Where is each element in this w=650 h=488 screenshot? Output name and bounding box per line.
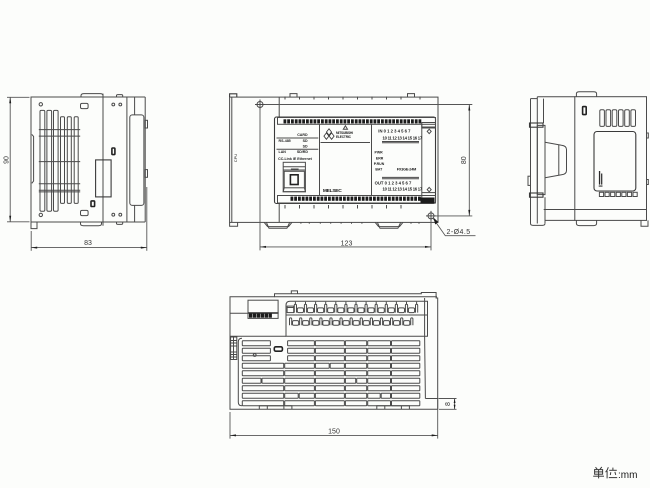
svg-text:10 11 12 13 14 15 16 17: 10 11 12 13 14 15 16 17 xyxy=(383,186,423,191)
svg-text:P.RUN: P.RUN xyxy=(374,162,385,166)
svg-text:83: 83 xyxy=(84,240,92,247)
svg-text::mm: :mm xyxy=(618,470,637,481)
svg-text:PWR: PWR xyxy=(375,150,384,154)
svg-text:RS-485: RS-485 xyxy=(279,139,291,143)
svg-text:90: 90 xyxy=(4,156,11,164)
svg-text:ERR: ERR xyxy=(376,156,384,160)
svg-text:150: 150 xyxy=(328,429,340,436)
svg-text:SD: SD xyxy=(303,139,308,143)
svg-text:SD/RD: SD/RD xyxy=(297,150,309,154)
svg-text:SD: SD xyxy=(303,145,308,149)
svg-text:CPU: CPU xyxy=(233,154,238,163)
svg-text:BAT: BAT xyxy=(375,167,383,171)
svg-text:LAN: LAN xyxy=(279,150,287,154)
svg-text:OUT 0 1 2 3 4 5 6 7: OUT 0 1 2 3 4 5 6 7 xyxy=(375,180,412,185)
svg-text:10 11 12 13 14 15 16 17: 10 11 12 13 14 15 16 17 xyxy=(383,135,423,140)
svg-text:2-Ø4.5: 2-Ø4.5 xyxy=(447,229,471,236)
svg-text:123: 123 xyxy=(341,240,353,247)
svg-text:CC-Link IE Ethernet: CC-Link IE Ethernet xyxy=(278,157,313,161)
svg-text:CARD: CARD xyxy=(297,133,308,137)
svg-text:ELECTRIC: ELECTRIC xyxy=(336,135,352,139)
svg-text:8: 8 xyxy=(445,402,452,406)
svg-text:80: 80 xyxy=(461,156,468,164)
svg-text:IN 0 1 2 3 4 5 6 7: IN 0 1 2 3 4 5 6 7 xyxy=(378,129,411,134)
svg-text:MELSEC: MELSEC xyxy=(323,188,342,194)
svg-text:FX3GE-24M: FX3GE-24M xyxy=(397,167,416,171)
